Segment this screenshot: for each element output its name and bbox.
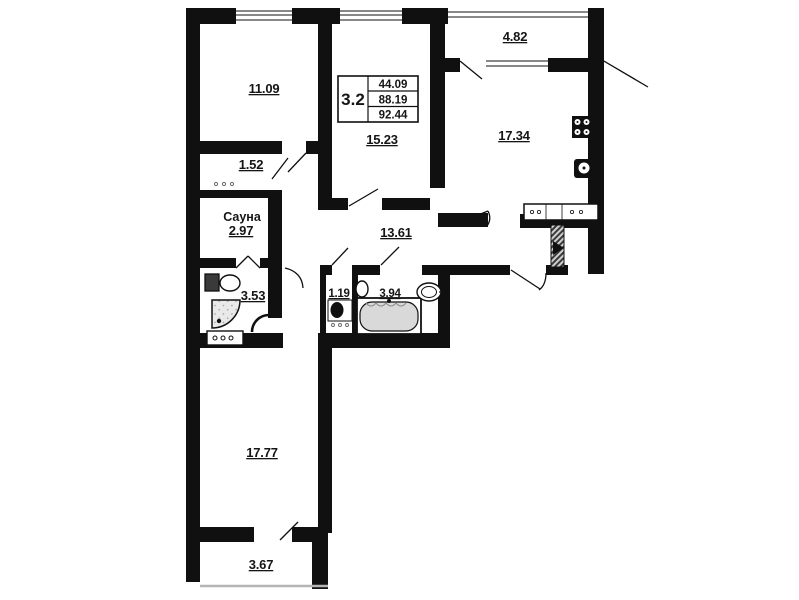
balcony-top-rail xyxy=(446,12,590,17)
bathtub-icon xyxy=(357,298,421,334)
wall-left-outer xyxy=(186,8,200,582)
label-sauna-name: Сауна xyxy=(223,210,262,224)
label-living-room: 17.77 xyxy=(246,445,278,460)
toilet-icon-wc xyxy=(328,300,352,327)
wall-balcony-bottom-right xyxy=(312,527,328,589)
wall-living-bottom-a xyxy=(200,527,254,542)
closet-shelf-marks xyxy=(214,182,233,185)
wall-top-b xyxy=(292,8,340,24)
window-kitchen-balcony xyxy=(486,61,548,66)
entrance-door-icon xyxy=(551,225,564,267)
wall-wet-bottom xyxy=(320,333,450,348)
floor-plan-page: 3.2 44.09 88.19 92.44 11.09 15.23 4.82 1… xyxy=(0,0,799,600)
door-closet xyxy=(272,158,288,179)
stove-icon xyxy=(572,116,592,138)
label-sauna-area: 2.97 xyxy=(229,223,254,238)
door-room-center xyxy=(349,189,378,206)
washbasin-icon-shower-room xyxy=(207,331,243,345)
label-closet: 1.52 xyxy=(239,157,264,172)
wall-right-outer xyxy=(588,8,604,274)
door-bathroom xyxy=(381,247,399,265)
label-balcony-bottom: 3.67 xyxy=(249,557,274,572)
wall-balcony-kitchen-a xyxy=(430,58,460,72)
info-box: 3.2 44.09 88.19 92.44 xyxy=(338,76,418,122)
door-balcony-top xyxy=(460,61,482,79)
unit-type: 3.2 xyxy=(341,90,365,109)
wall-sauna-bottom-a xyxy=(200,258,236,268)
wall-room-center-bottom-b xyxy=(382,198,430,210)
wall-bedrooms-divider xyxy=(318,8,332,210)
washbasin-icon-wall xyxy=(356,281,368,297)
door-sauna xyxy=(236,256,260,268)
door-entrance-swing xyxy=(511,270,546,290)
label-hallway: 13.61 xyxy=(380,225,412,240)
door-wc xyxy=(332,248,348,265)
label-room-center: 15.23 xyxy=(366,132,398,147)
label-bathroom: 3.94 xyxy=(379,288,401,300)
wall-bedroom-bottom-b xyxy=(306,141,318,154)
door-corridor-arc xyxy=(285,268,303,288)
label-wc: 1.19 xyxy=(328,288,349,300)
door-shower-room-arc xyxy=(252,315,269,332)
wall-kitchen-bottom-a xyxy=(438,213,488,227)
label-shower-room: 3.53 xyxy=(241,288,266,303)
living-area-value: 44.09 xyxy=(379,79,408,91)
label-balcony-top: 4.82 xyxy=(503,29,528,44)
shower-icon xyxy=(212,300,240,328)
wall-wet-top-c xyxy=(422,265,510,275)
window-bedroom xyxy=(236,11,292,20)
leader-line xyxy=(597,57,648,87)
toilet-icon-shower-room xyxy=(205,274,240,291)
door-bedroom xyxy=(288,153,306,172)
kitchen-sink-icon xyxy=(574,159,595,178)
window-room-center xyxy=(340,11,402,20)
wall-balcony-kitchen-b xyxy=(548,58,588,72)
apartment-area-value: 88.19 xyxy=(379,95,408,107)
floor-plan-drawing: 3.2 44.09 88.19 92.44 11.09 15.23 4.82 1… xyxy=(0,0,799,600)
label-kitchen: 17.34 xyxy=(498,128,531,143)
total-area-value: 92.44 xyxy=(379,110,408,122)
wall-bedroom-bottom-a xyxy=(200,141,282,154)
wall-sauna-hall xyxy=(268,190,282,318)
label-bedroom-top-left: 11.09 xyxy=(249,81,280,96)
wall-top-a xyxy=(186,8,236,24)
wall-closet-sauna xyxy=(200,190,278,198)
wall-wc-left xyxy=(320,265,326,343)
wall-sauna-bottom-b xyxy=(260,258,282,268)
wall-room-kitchen-divider xyxy=(430,8,445,188)
kitchen-counter-icon xyxy=(524,204,598,220)
wall-room-center-bottom-a xyxy=(332,198,348,210)
wall-living-right xyxy=(318,333,332,533)
